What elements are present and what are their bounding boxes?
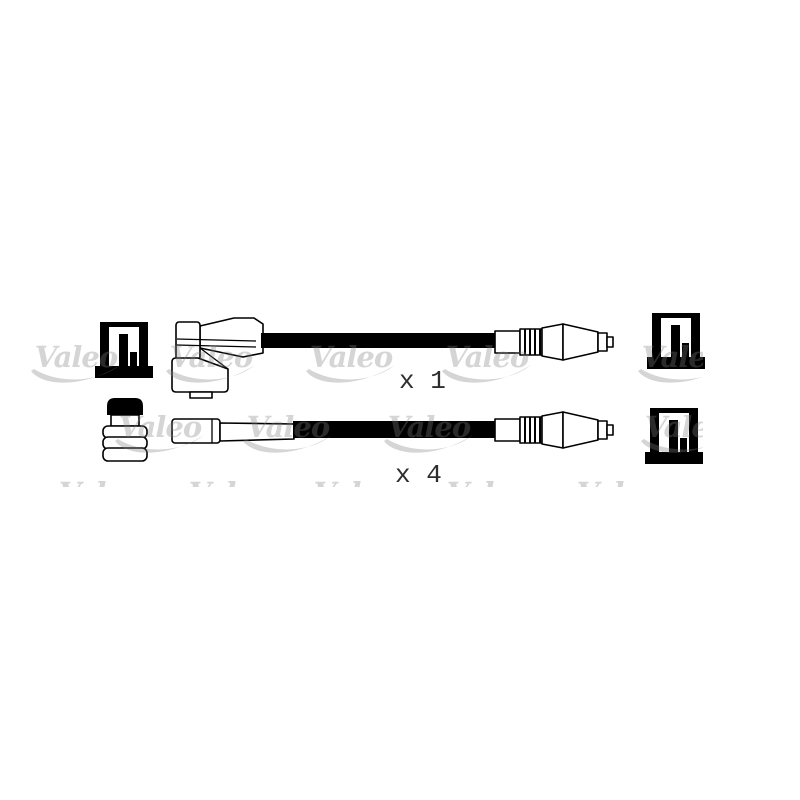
valeo-watermark: Valeo	[573, 476, 662, 519]
quantity-label-cable-set: x 4	[395, 460, 442, 490]
valeo-watermark: Valeo	[185, 476, 274, 519]
valeo-watermark: Valeo	[306, 340, 395, 383]
valeo-watermark-text: Valeo	[247, 410, 330, 444]
valeo-watermark-text: Valeo	[189, 476, 272, 510]
valeo-watermark: Valeo	[605, 267, 694, 310]
cable-set-connector	[495, 412, 613, 448]
valeo-watermark: Valeo	[243, 410, 332, 453]
valeo-swoosh-icon	[475, 292, 564, 310]
valeo-watermark-text: Valeo	[577, 476, 660, 510]
valeo-watermark-text: Valeo	[170, 340, 253, 374]
valeo-watermark: Valeo	[475, 267, 564, 310]
valeo-swoosh-icon	[310, 501, 399, 519]
valeo-swoosh-icon	[573, 501, 662, 519]
valeo-watermark-text: Valeo	[447, 476, 530, 510]
valeo-watermark-text: Valeo	[354, 267, 437, 301]
valeo-watermark-text: Valeo	[119, 410, 202, 444]
valeo-swoosh-icon	[217, 292, 306, 310]
valeo-swoosh-icon	[95, 292, 184, 310]
valeo-watermark-text: Valeo	[310, 340, 393, 374]
valeo-watermark-text: Valeo	[314, 476, 397, 510]
valeo-swoosh-icon	[700, 501, 789, 519]
valeo-watermark-text: Valeo	[645, 410, 728, 444]
valeo-watermark: Valeo	[115, 410, 204, 453]
valeo-watermark-text: Valeo	[388, 410, 471, 444]
valeo-watermark-text: Valeo	[642, 340, 725, 374]
valeo-watermark: Valeo	[638, 340, 727, 383]
valeo-watermark-text: Valeo	[479, 267, 562, 301]
valeo-watermark: Valeo	[442, 340, 531, 383]
valeo-watermark: Valeo	[95, 267, 184, 310]
valeo-watermark-text: Valeo	[704, 476, 787, 510]
product-image: x 1 x 4 ValeoValeoValeoValeoValeoValeoVa…	[0, 0, 800, 800]
valeo-watermark-text: Valeo	[99, 267, 182, 301]
valeo-swoosh-icon	[55, 501, 144, 519]
valeo-watermark-text: Valeo	[446, 340, 529, 374]
valeo-watermark-text: Valeo	[609, 267, 692, 301]
valeo-watermark: Valeo	[310, 476, 399, 519]
valeo-swoosh-icon	[350, 292, 439, 310]
valeo-watermark-text: Valeo	[221, 267, 304, 301]
valeo-swoosh-icon	[443, 501, 532, 519]
angled-boot-tab	[190, 392, 212, 398]
valeo-watermark: Valeo	[384, 410, 473, 453]
valeo-watermark: Valeo	[217, 267, 306, 310]
valeo-watermark-text: Valeo	[59, 476, 142, 510]
valeo-swoosh-icon	[605, 292, 694, 310]
valeo-watermark: Valeo	[55, 476, 144, 519]
valeo-watermark: Valeo	[443, 476, 532, 519]
quantity-label-cable-single: x 1	[399, 366, 446, 396]
valeo-watermark: Valeo	[350, 267, 439, 310]
valeo-watermark-text: Valeo	[35, 340, 118, 374]
valeo-watermark: Valeo	[700, 476, 789, 519]
valeo-swoosh-icon	[185, 501, 274, 519]
ignition-cable-kit-drawing: x 1 x 4 ValeoValeoValeoValeoValeoValeoVa…	[0, 0, 800, 800]
